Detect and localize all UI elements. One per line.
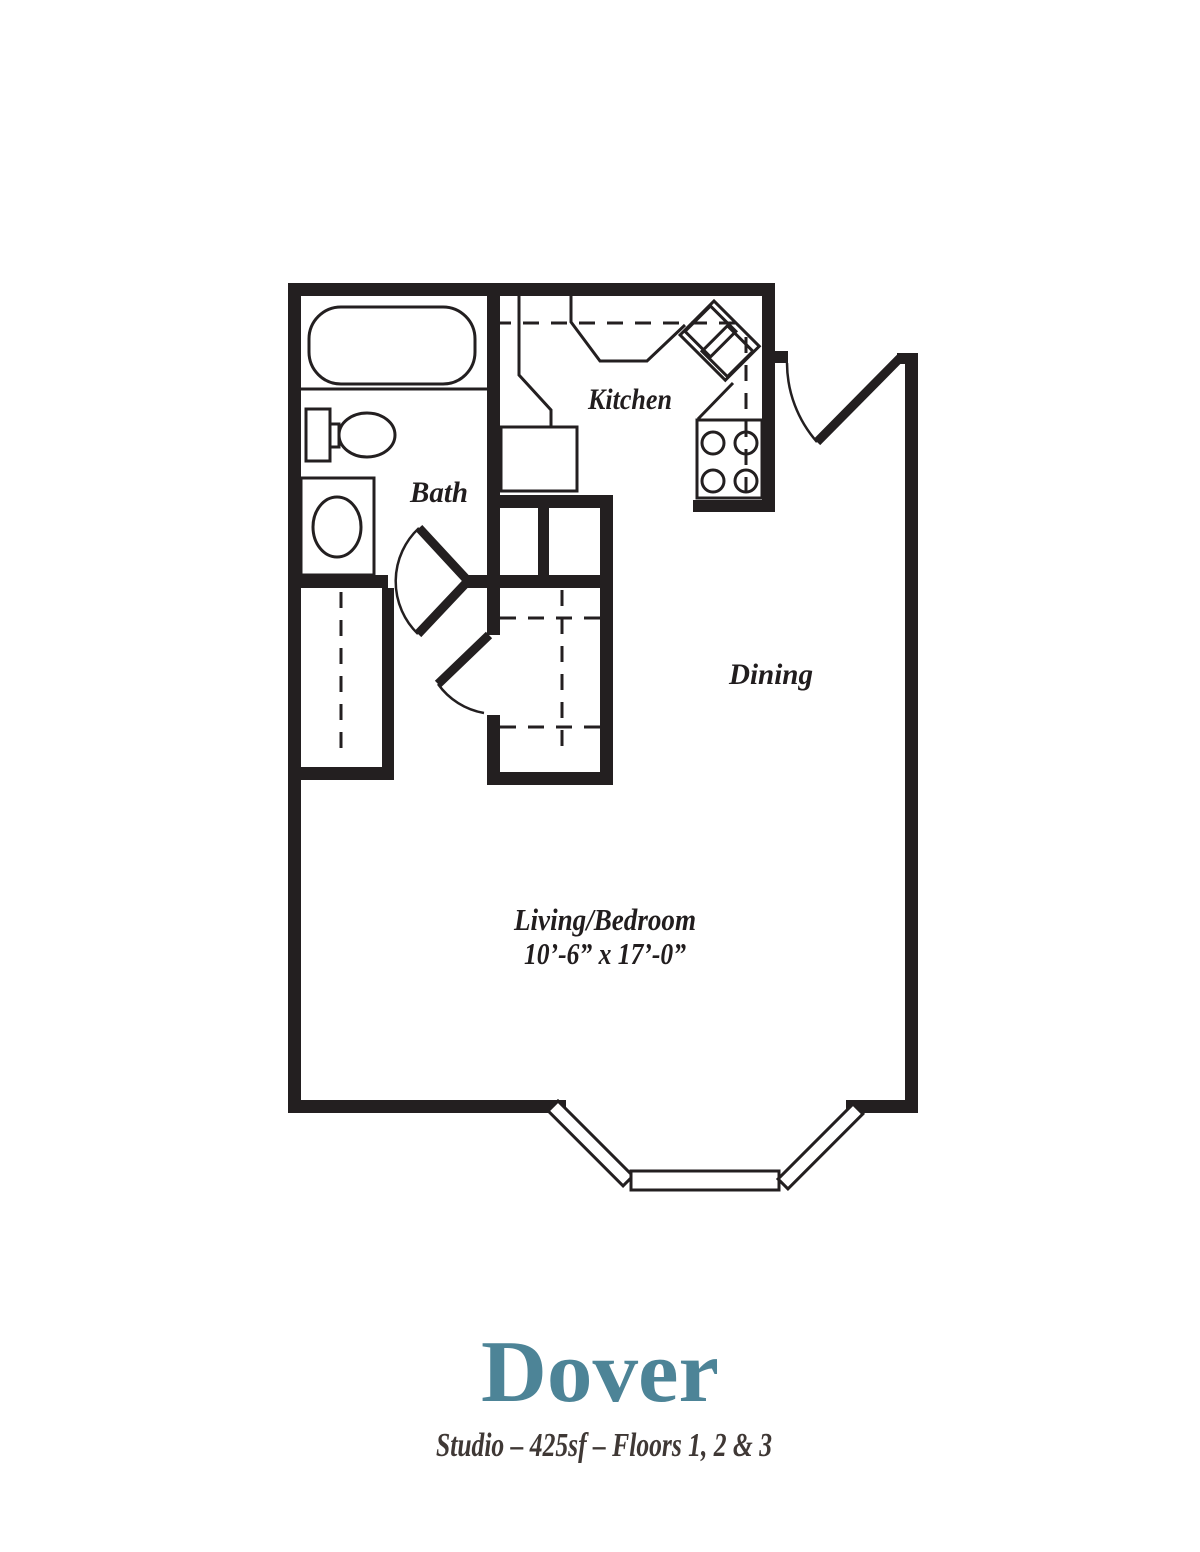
- closet-door-leaf: [438, 635, 489, 684]
- wall-bath-south: [288, 575, 388, 588]
- bath-door-swing-arc: [396, 528, 419, 634]
- bath-door-leaf: [418, 528, 468, 634]
- wall-left: [288, 283, 301, 1113]
- living-bedroom-dimensions: 10’-6” x 17’-0”: [524, 936, 686, 971]
- wall-top: [288, 283, 775, 296]
- bath-fixtures: [298, 307, 490, 575]
- wall-utility-top: [487, 495, 613, 508]
- wall-utility-divider: [538, 508, 549, 575]
- washer-door: [313, 497, 361, 557]
- dining-label: Dining: [728, 658, 813, 691]
- bay-window: [548, 1101, 863, 1190]
- wall-closet-right: [600, 508, 613, 785]
- burner-icon: [702, 470, 724, 492]
- counter-edge-line: [519, 296, 551, 427]
- wall-kitchen-south-cap: [693, 500, 775, 512]
- wall-right: [905, 353, 918, 1113]
- corner-counter-edge: [698, 383, 733, 419]
- burner-icon: [702, 432, 724, 454]
- closet-dashed-lines: [341, 590, 600, 757]
- living-bedroom-label: Living/Bedroom: [513, 902, 696, 937]
- plan-subtitle: Studio – 425sf – Floors 1, 2 & 3: [436, 1427, 772, 1464]
- wall-kitchen-right: [762, 283, 775, 512]
- wall-entry-stub: [775, 351, 788, 363]
- closet-door-swing-arc: [438, 684, 484, 713]
- wall-bottom-left: [288, 1100, 566, 1113]
- floor-plan-canvas: Kitchen Bath Dining Living/Bedroom 10’-6…: [0, 0, 1200, 1552]
- wall-hall-south: [462, 575, 613, 588]
- entry-door-leaf: [817, 357, 901, 442]
- wall-closet-bottom: [487, 772, 613, 785]
- floor-plan-page: Kitchen Bath Dining Living/Bedroom 10’-6…: [0, 0, 1200, 1552]
- toilet-tank: [306, 409, 330, 461]
- refrigerator: [501, 427, 577, 491]
- range: [697, 420, 762, 498]
- bath-label: Bath: [409, 476, 468, 509]
- toilet-bowl: [339, 413, 395, 457]
- counter-front-edge: [571, 296, 685, 361]
- bay-window-left-pane: [548, 1101, 633, 1186]
- plan-title: Dover: [481, 1324, 719, 1421]
- bay-window-right-pane: [778, 1104, 863, 1189]
- wall-left-closet-bottom: [288, 767, 394, 780]
- bathtub: [309, 307, 475, 384]
- wall-left-closet-right: [382, 588, 394, 767]
- bay-window-center-pane: [631, 1171, 779, 1190]
- entry-door-swing-arc: [787, 363, 817, 442]
- kitchen-label: Kitchen: [587, 383, 672, 416]
